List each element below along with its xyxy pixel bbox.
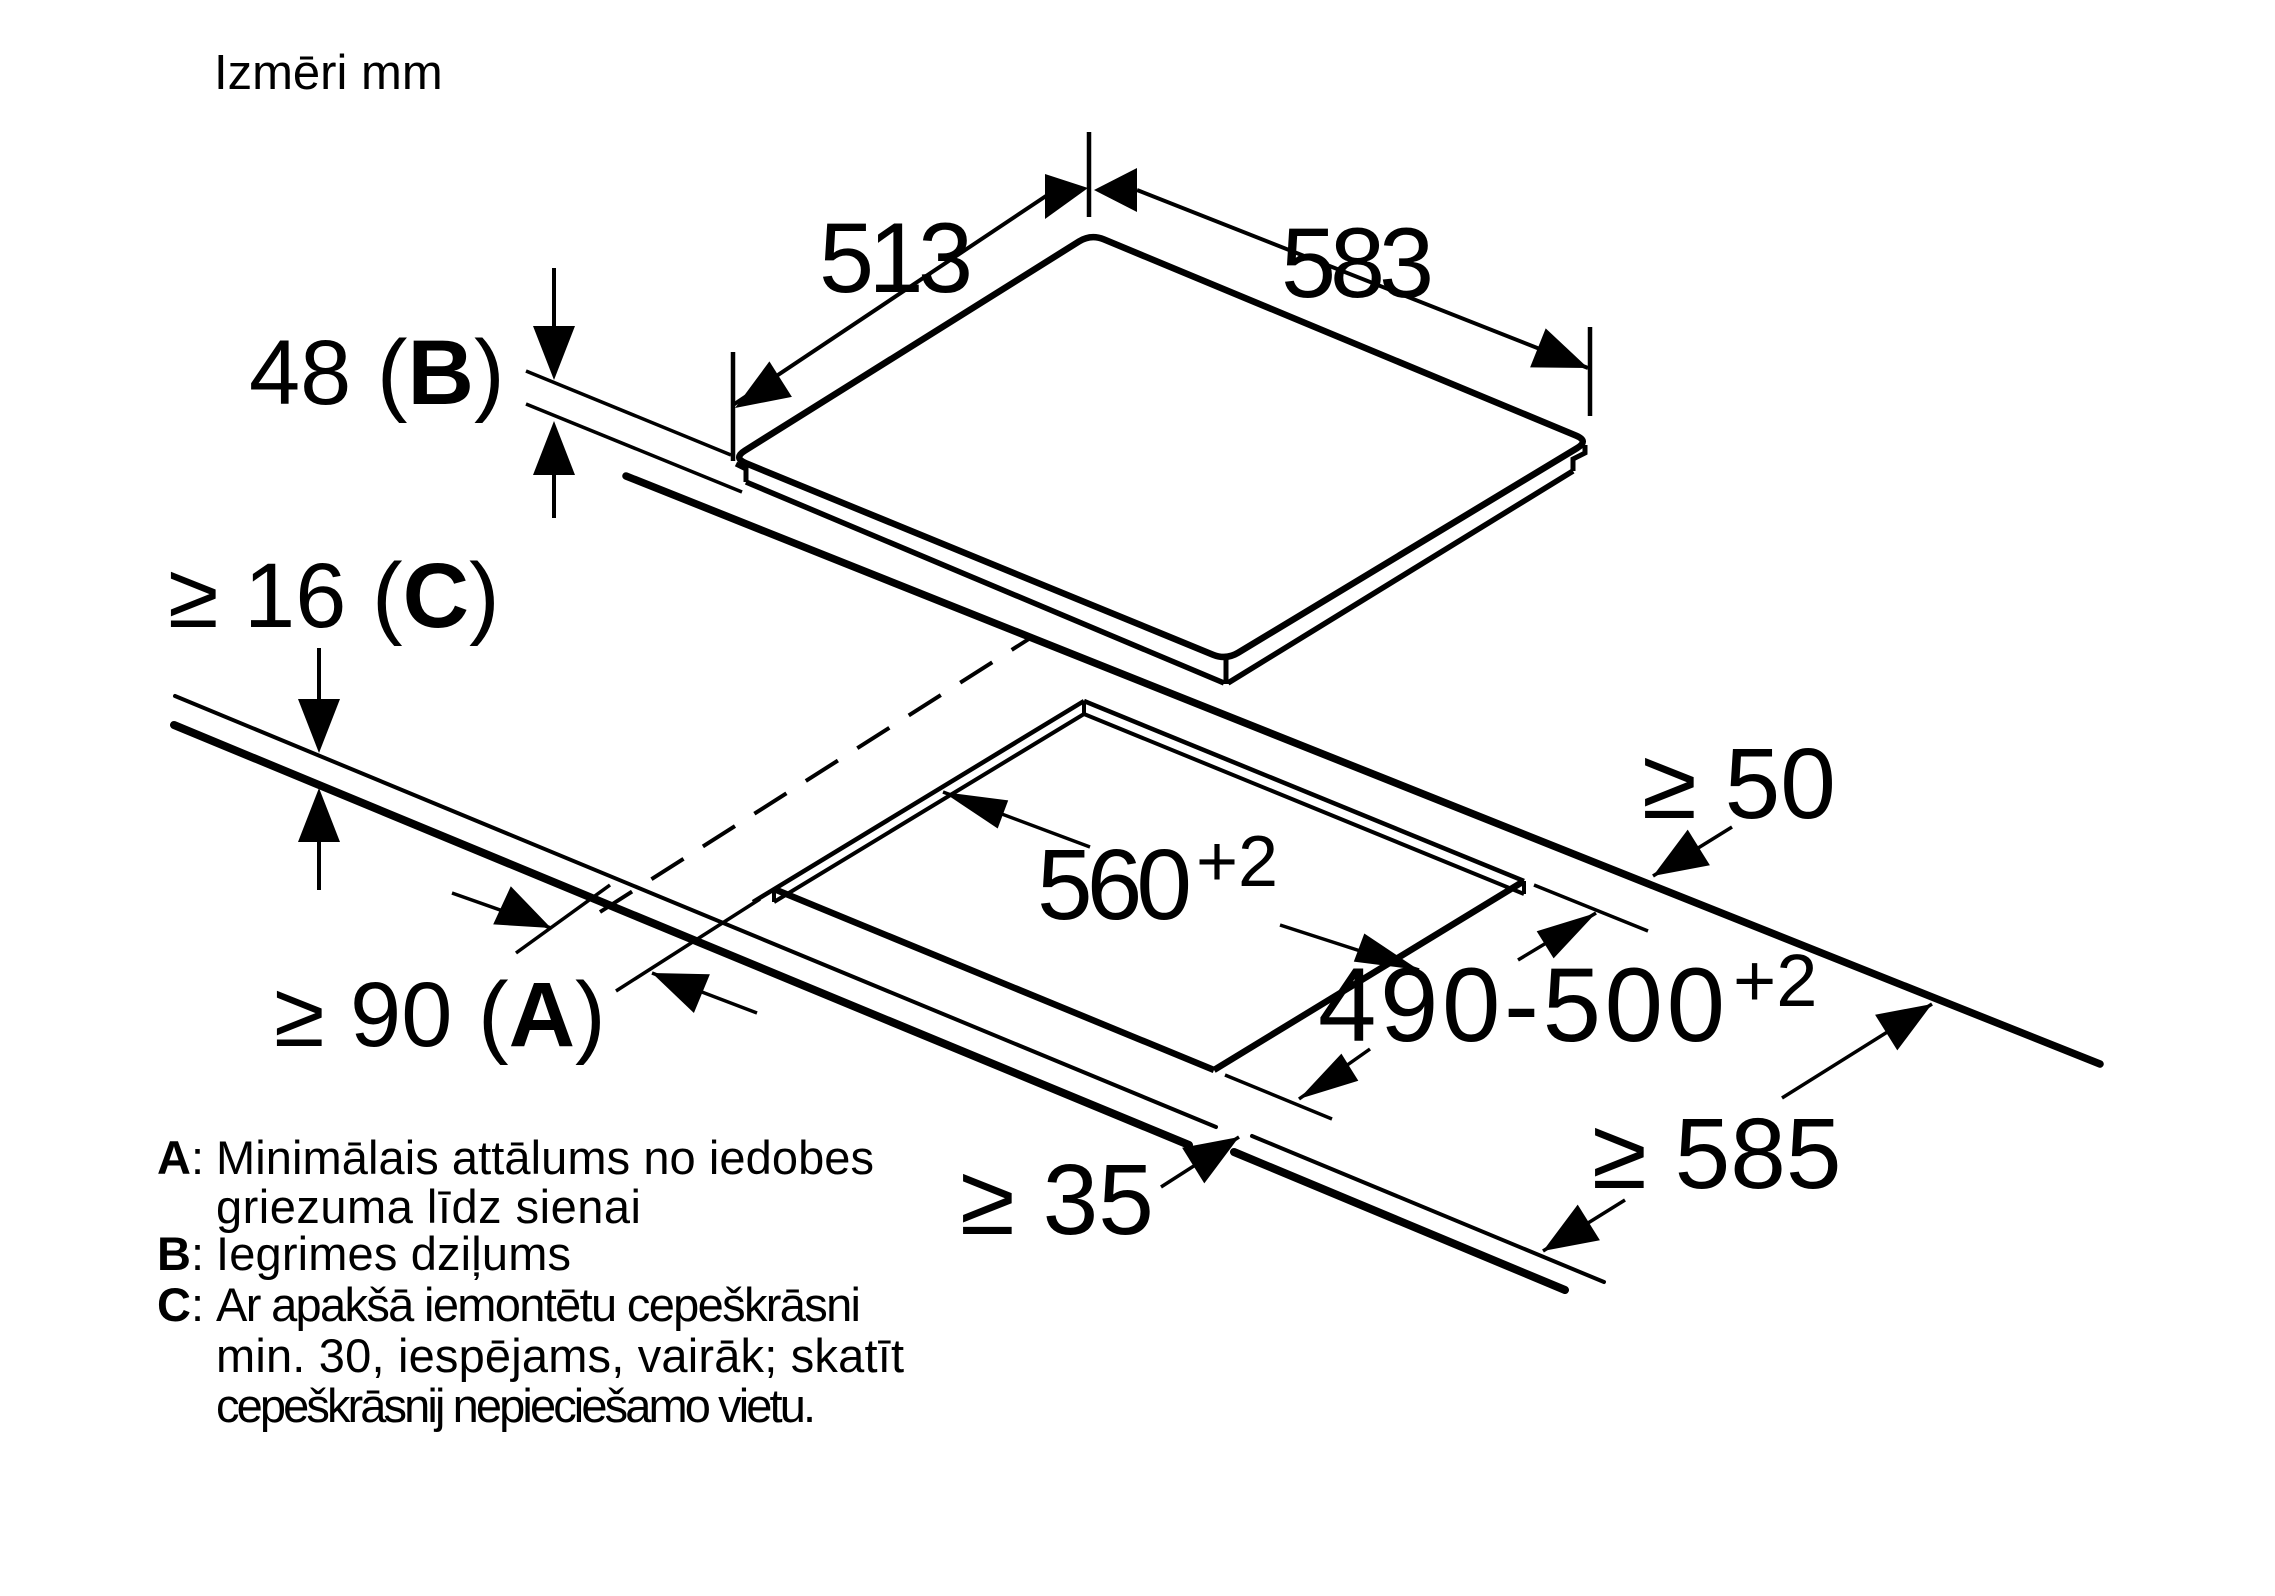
- svg-text:C:: C:: [157, 1278, 204, 1331]
- svg-text:≥ 50: ≥ 50: [1642, 728, 1836, 840]
- svg-text:B:: B:: [157, 1227, 204, 1280]
- svg-text:≥ 90 (A): ≥ 90 (A): [274, 964, 606, 1066]
- svg-text:Ar apakšā iemontētu cepeškrāsn: Ar apakšā iemontētu cepeškrāsni: [216, 1278, 861, 1331]
- svg-text:513: 513: [819, 202, 973, 313]
- svg-text:48 (B): 48 (B): [249, 322, 505, 424]
- svg-text:Izmēri mm: Izmēri mm: [214, 46, 443, 100]
- svg-text:A:: A:: [157, 1131, 204, 1184]
- svg-text:min. 30, iespējams, vairāk; sk: min. 30, iespējams, vairāk; skatīt: [216, 1329, 904, 1382]
- svg-text:cepeškrāsnij nepieciešamo viet: cepeškrāsnij nepieciešamo vietu.: [216, 1379, 816, 1432]
- svg-text:Minimālais attālums no iedobes: Minimālais attālums no iedobes: [216, 1131, 874, 1184]
- svg-text:≥ 585: ≥ 585: [1592, 1098, 1842, 1210]
- svg-text:≥ 16 (C): ≥ 16 (C): [168, 545, 500, 647]
- svg-text:Iegrimes dziļums: Iegrimes dziļums: [216, 1227, 571, 1280]
- svg-text:+2: +2: [1733, 939, 1817, 1022]
- svg-text:griezuma līdz sienai: griezuma līdz sienai: [216, 1180, 641, 1233]
- svg-text:583: 583: [1281, 207, 1434, 318]
- svg-text:≥ 35: ≥ 35: [960, 1144, 1154, 1256]
- svg-text:+2: +2: [1196, 822, 1278, 902]
- svg-text:560: 560: [1037, 829, 1192, 941]
